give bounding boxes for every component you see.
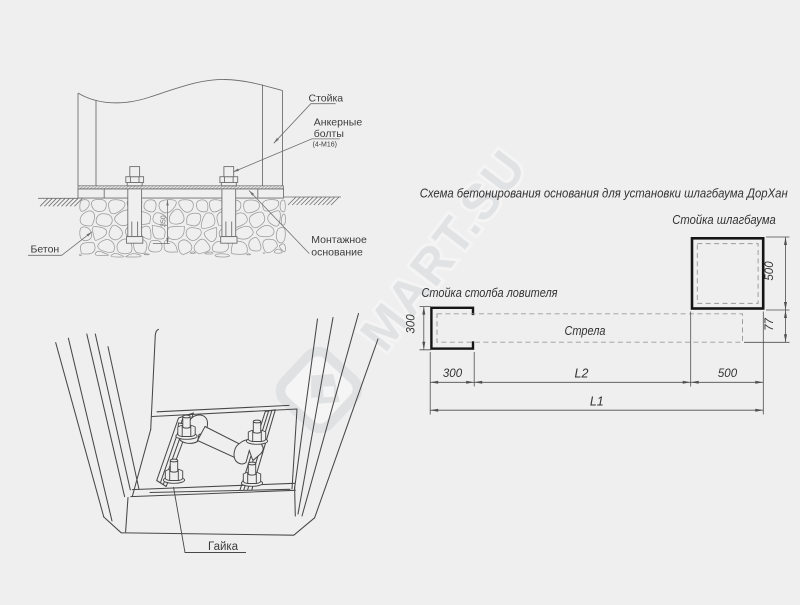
svg-text:500: 500 — [718, 368, 738, 380]
svg-text:Схема бетонирования основания: Схема бетонирования основания для устано… — [420, 186, 788, 201]
svg-text:(4-М16): (4-М16) — [313, 141, 338, 148]
svg-text:500: 500 — [764, 261, 776, 281]
svg-text:77: 77 — [764, 318, 776, 331]
svg-text:Анкерные: Анкерные — [314, 116, 363, 128]
svg-text:Стойка: Стойка — [309, 92, 344, 104]
svg-text:основание: основание — [311, 246, 363, 258]
svg-text:350: 350 — [160, 215, 167, 227]
svg-text:L2: L2 — [575, 366, 589, 380]
svg-text:Гайка: Гайка — [208, 541, 239, 553]
svg-text:Монтажное: Монтажное — [311, 234, 367, 246]
svg-text:болты: болты — [314, 128, 344, 140]
svg-text:Стойка столба ловителя: Стойка столба ловителя — [422, 286, 558, 300]
svg-text:300: 300 — [443, 368, 463, 380]
svg-text:Бетон: Бетон — [31, 243, 60, 255]
svg-text:L1: L1 — [590, 395, 604, 409]
svg-text:300: 300 — [406, 314, 418, 334]
svg-text:Стойка шлагбаума: Стойка шлагбаума — [672, 212, 776, 227]
svg-text:Стрела: Стрела — [565, 324, 606, 338]
